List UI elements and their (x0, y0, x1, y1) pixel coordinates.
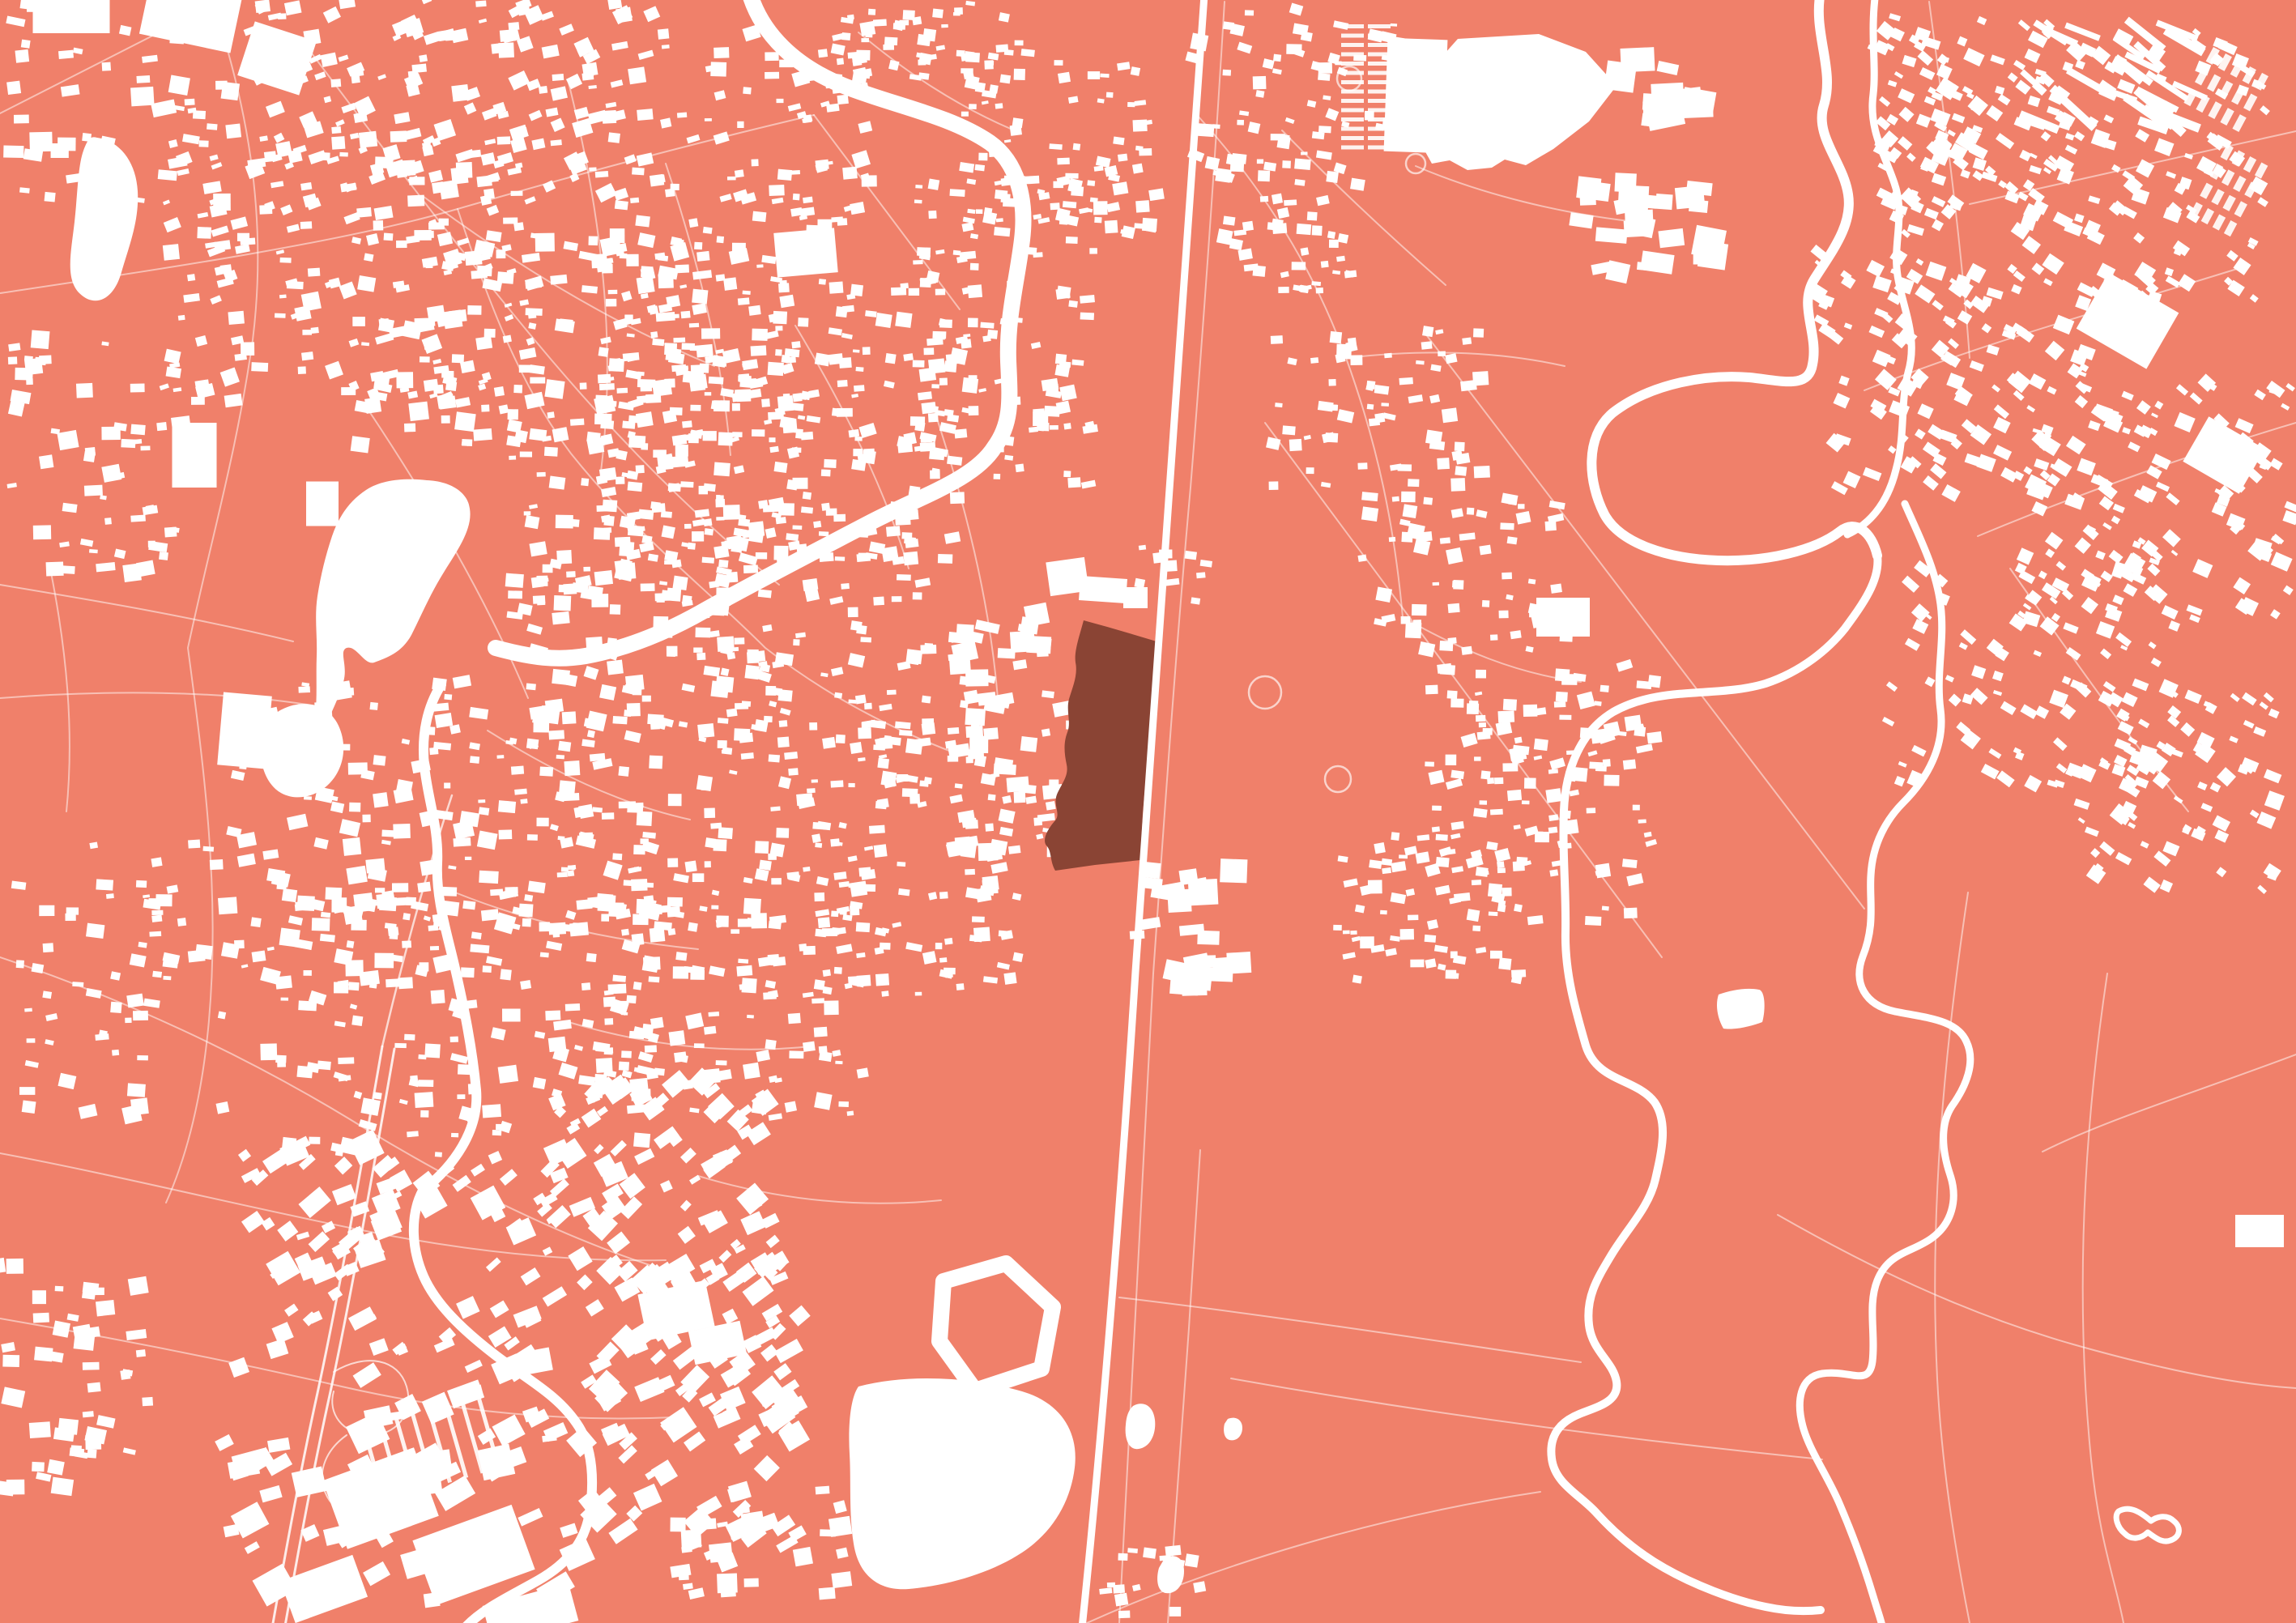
building (475, 336, 492, 350)
building (1523, 705, 1538, 717)
building (1555, 668, 1570, 681)
building (1318, 126, 1331, 133)
building (736, 390, 751, 403)
building (122, 563, 142, 582)
building (402, 940, 411, 948)
building (661, 511, 672, 518)
building (696, 344, 713, 358)
building (738, 376, 751, 381)
building (1450, 698, 1463, 707)
building (536, 818, 548, 827)
building (1271, 134, 1285, 140)
building (931, 384, 939, 388)
building (1518, 504, 1524, 509)
building (960, 700, 969, 708)
building (1333, 925, 1342, 931)
building (1008, 846, 1021, 854)
building (373, 1092, 381, 1100)
building (1455, 442, 1465, 452)
building (629, 1031, 645, 1039)
building (102, 62, 111, 71)
building (537, 601, 545, 606)
building (965, 869, 975, 875)
building (961, 112, 969, 117)
city-map-svg[interactable] (0, 0, 2296, 1623)
building (641, 583, 655, 591)
building (592, 807, 603, 812)
building (789, 1050, 803, 1059)
building (658, 274, 674, 288)
building (1545, 521, 1557, 531)
building (1382, 867, 1391, 874)
building (710, 62, 726, 76)
building (630, 198, 639, 203)
building (897, 774, 908, 782)
building (821, 503, 830, 511)
building (1193, 1581, 1206, 1593)
building (441, 371, 454, 377)
building (1636, 680, 1651, 689)
building (935, 943, 943, 949)
building (615, 537, 631, 547)
building (924, 777, 932, 784)
building (14, 115, 29, 124)
building (841, 32, 850, 40)
building (1316, 288, 1323, 293)
building (848, 429, 859, 437)
building (675, 445, 688, 457)
building (902, 788, 918, 797)
building (92, 1288, 104, 1295)
building (969, 736, 988, 753)
building (701, 786, 709, 790)
building (529, 396, 539, 404)
building (887, 690, 897, 695)
building (642, 696, 651, 702)
building (1191, 877, 1209, 894)
building (658, 28, 670, 39)
building (837, 218, 848, 225)
building (765, 1039, 776, 1050)
building (1310, 357, 1318, 364)
building (647, 714, 664, 726)
building (621, 1012, 628, 1016)
building (954, 7, 963, 15)
building (547, 411, 554, 419)
building (696, 653, 705, 660)
building (583, 567, 590, 572)
building (803, 492, 811, 500)
building (540, 952, 549, 958)
building (346, 866, 368, 885)
building (490, 888, 503, 896)
building (586, 432, 600, 443)
building (456, 162, 473, 178)
building (812, 822, 829, 830)
building (580, 382, 587, 390)
building (863, 347, 871, 355)
building (526, 684, 535, 691)
building (83, 1362, 100, 1370)
building (451, 1133, 458, 1137)
building (837, 380, 848, 387)
building (1436, 834, 1448, 841)
building (688, 433, 699, 443)
building (158, 169, 177, 181)
building (708, 1012, 719, 1016)
building (509, 890, 516, 897)
building (682, 420, 692, 428)
building (1440, 537, 1450, 543)
building (850, 742, 863, 754)
building (738, 518, 750, 527)
building (765, 52, 778, 61)
building (599, 467, 617, 482)
building (65, 914, 75, 921)
building (1646, 731, 1662, 743)
building (875, 313, 892, 328)
building (770, 807, 780, 811)
building (1391, 832, 1399, 841)
building (445, 381, 457, 391)
city-map[interactable] (0, 0, 2296, 1623)
building (694, 1519, 717, 1531)
building (570, 419, 585, 426)
building (731, 929, 739, 933)
building (616, 388, 628, 394)
building (1269, 481, 1279, 490)
building (838, 1101, 849, 1107)
building (419, 54, 428, 62)
building (112, 1050, 119, 1056)
building (527, 834, 538, 841)
building (3, 146, 23, 158)
building (409, 177, 424, 185)
building (1602, 906, 1609, 911)
building (1065, 173, 1078, 179)
building (602, 812, 615, 820)
building (743, 564, 758, 573)
building (1020, 736, 1038, 752)
building (1425, 685, 1438, 695)
building (511, 191, 523, 196)
building (819, 279, 826, 285)
building (1497, 861, 1505, 868)
building (837, 95, 848, 104)
building (644, 895, 654, 905)
building (662, 45, 670, 49)
building (978, 692, 997, 706)
building (562, 711, 577, 724)
building (1054, 60, 1063, 66)
large-building (2235, 1215, 2284, 1247)
building (999, 75, 1011, 84)
building (398, 977, 413, 989)
building (1534, 739, 1548, 751)
building (1550, 583, 1562, 593)
building (841, 583, 850, 590)
building (282, 888, 297, 902)
building (384, 233, 394, 241)
building (539, 922, 551, 931)
building (984, 60, 993, 69)
building (1185, 551, 1197, 560)
building (684, 966, 693, 973)
building (1282, 160, 1291, 168)
building (526, 308, 543, 316)
building (715, 675, 734, 692)
building (1272, 194, 1283, 205)
building (783, 394, 790, 398)
building (1144, 877, 1163, 890)
building (1344, 270, 1357, 279)
building (881, 990, 888, 996)
building (1513, 745, 1530, 755)
building (726, 709, 738, 718)
building (1049, 143, 1062, 150)
building (939, 892, 948, 899)
building (965, 708, 986, 726)
building (441, 415, 450, 424)
building (130, 424, 145, 436)
building (711, 400, 722, 410)
building (130, 1097, 149, 1115)
building (130, 515, 146, 522)
building (320, 934, 335, 943)
building (905, 539, 918, 548)
building (24, 1008, 32, 1012)
building (938, 554, 952, 564)
building (702, 557, 714, 564)
building (884, 36, 897, 45)
building (26, 378, 33, 385)
building (599, 684, 616, 701)
building (297, 896, 315, 911)
building (347, 940, 355, 948)
building (680, 481, 693, 488)
building (1623, 759, 1636, 769)
building (811, 833, 821, 843)
building (552, 611, 569, 625)
building (1421, 341, 1433, 350)
building (864, 703, 872, 709)
building (1068, 300, 1078, 308)
building (195, 944, 213, 960)
building (241, 342, 254, 356)
building (462, 901, 475, 910)
building (508, 22, 519, 31)
building (829, 281, 844, 293)
building (549, 476, 566, 490)
building (524, 894, 533, 901)
building (1071, 186, 1084, 197)
building (539, 86, 547, 94)
building (1600, 685, 1609, 692)
building (331, 136, 345, 150)
building (601, 914, 609, 921)
building (994, 764, 1016, 775)
building (492, 1130, 502, 1135)
row-strip (1368, 24, 1391, 28)
building (732, 403, 740, 411)
building (855, 367, 863, 372)
building (664, 560, 673, 564)
building (842, 305, 854, 313)
building (539, 766, 553, 776)
building (682, 343, 695, 350)
building (747, 652, 759, 663)
building (1216, 228, 1233, 245)
building (428, 925, 439, 931)
building (106, 893, 114, 899)
building (636, 411, 654, 428)
building (376, 893, 392, 909)
building (1658, 228, 1685, 248)
building (553, 934, 560, 938)
building (718, 827, 732, 839)
building (1461, 646, 1472, 655)
building (935, 288, 945, 295)
building (1554, 701, 1566, 708)
building (1258, 170, 1270, 181)
building (814, 1092, 832, 1110)
building (780, 280, 787, 285)
building (815, 352, 830, 366)
building (899, 730, 913, 736)
building (1311, 281, 1321, 286)
building (237, 233, 249, 241)
building (761, 398, 770, 407)
building (31, 330, 50, 350)
building (1476, 715, 1485, 722)
building (848, 883, 854, 888)
building (51, 1477, 74, 1497)
building (544, 379, 564, 399)
building (408, 70, 419, 78)
building (922, 28, 936, 41)
building (752, 429, 765, 437)
building (1634, 726, 1646, 737)
building (39, 905, 54, 916)
building (1524, 777, 1536, 788)
building (566, 571, 576, 577)
building (471, 931, 482, 939)
building (187, 274, 195, 281)
building (1289, 439, 1302, 451)
building (837, 58, 844, 66)
building (667, 858, 678, 867)
building (608, 132, 620, 143)
building (1576, 176, 1601, 200)
building (873, 19, 887, 27)
building (603, 515, 614, 526)
building (437, 316, 448, 327)
building (429, 748, 438, 755)
building (477, 831, 498, 850)
building (821, 469, 831, 476)
building (758, 589, 772, 598)
building (829, 353, 843, 365)
building (1139, 545, 1146, 551)
building (1403, 504, 1418, 518)
building (339, 688, 355, 696)
building (1329, 240, 1339, 248)
building (1408, 914, 1418, 920)
building (705, 861, 711, 867)
building (125, 1017, 131, 1023)
building (1118, 1611, 1130, 1619)
building (96, 879, 113, 890)
building (1255, 90, 1264, 98)
building (939, 378, 948, 386)
building (1063, 471, 1071, 477)
building (1343, 931, 1350, 935)
building (6, 81, 21, 95)
building (29, 1421, 51, 1438)
building (968, 318, 978, 328)
building (793, 194, 800, 200)
building (768, 854, 777, 860)
building (452, 354, 464, 363)
building (1037, 650, 1049, 657)
building (921, 437, 932, 442)
building (862, 449, 876, 464)
building (496, 755, 504, 759)
building (944, 938, 953, 945)
building (1131, 66, 1140, 76)
building (714, 462, 731, 477)
building (444, 782, 450, 788)
building (862, 175, 877, 186)
building (1500, 522, 1514, 530)
building (705, 118, 712, 121)
building (976, 209, 983, 214)
building (351, 1016, 363, 1026)
building (309, 1137, 320, 1144)
building (1474, 466, 1490, 478)
building (375, 888, 385, 892)
building (704, 807, 715, 818)
building (339, 152, 348, 157)
building (431, 990, 445, 1004)
building (1405, 622, 1421, 638)
large-building (1079, 576, 1127, 603)
building (769, 185, 785, 196)
building (104, 518, 112, 525)
building (526, 739, 539, 750)
building (858, 727, 871, 739)
building (1067, 477, 1080, 488)
building (351, 920, 366, 931)
building (280, 258, 292, 263)
building (722, 750, 731, 754)
building (1527, 915, 1544, 925)
building (1057, 158, 1070, 165)
building (1604, 775, 1619, 786)
building (311, 327, 319, 334)
building (1595, 863, 1611, 879)
building (210, 859, 224, 870)
building (919, 368, 936, 382)
building (1033, 817, 1042, 826)
building (58, 138, 76, 151)
building (1307, 211, 1318, 220)
building (1284, 199, 1297, 206)
building (726, 535, 743, 550)
building (814, 1027, 828, 1037)
building (319, 152, 330, 160)
building (1503, 699, 1517, 711)
